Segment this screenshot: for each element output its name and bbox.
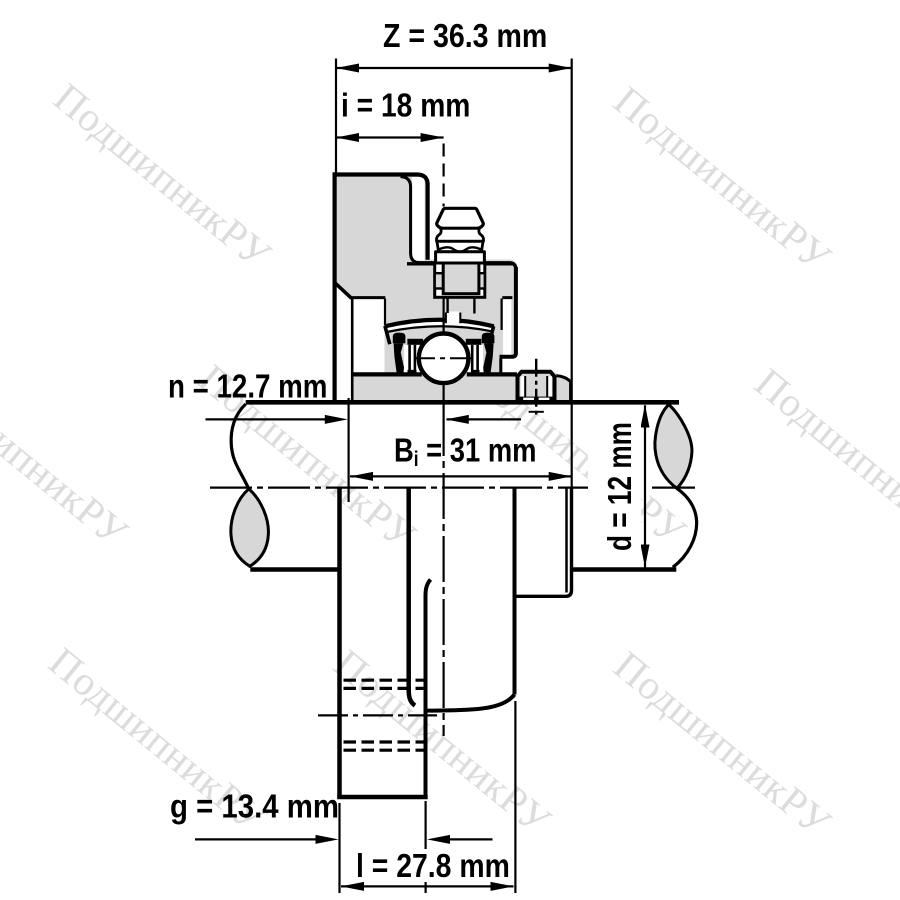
svg-text:l = 27.8 mm: l = 27.8 mm [356,847,510,885]
svg-text:i = 18 mm: i = 18 mm [341,86,470,124]
svg-text:Z = 36.3 mm: Z = 36.3 mm [383,17,547,55]
svg-text:g = 13.4 mm: g = 13.4 mm [170,788,339,825]
svg-text:n = 12.7 mm: n = 12.7 mm [168,367,327,405]
svg-text:d = 12 mm: d = 12 mm [602,422,639,551]
